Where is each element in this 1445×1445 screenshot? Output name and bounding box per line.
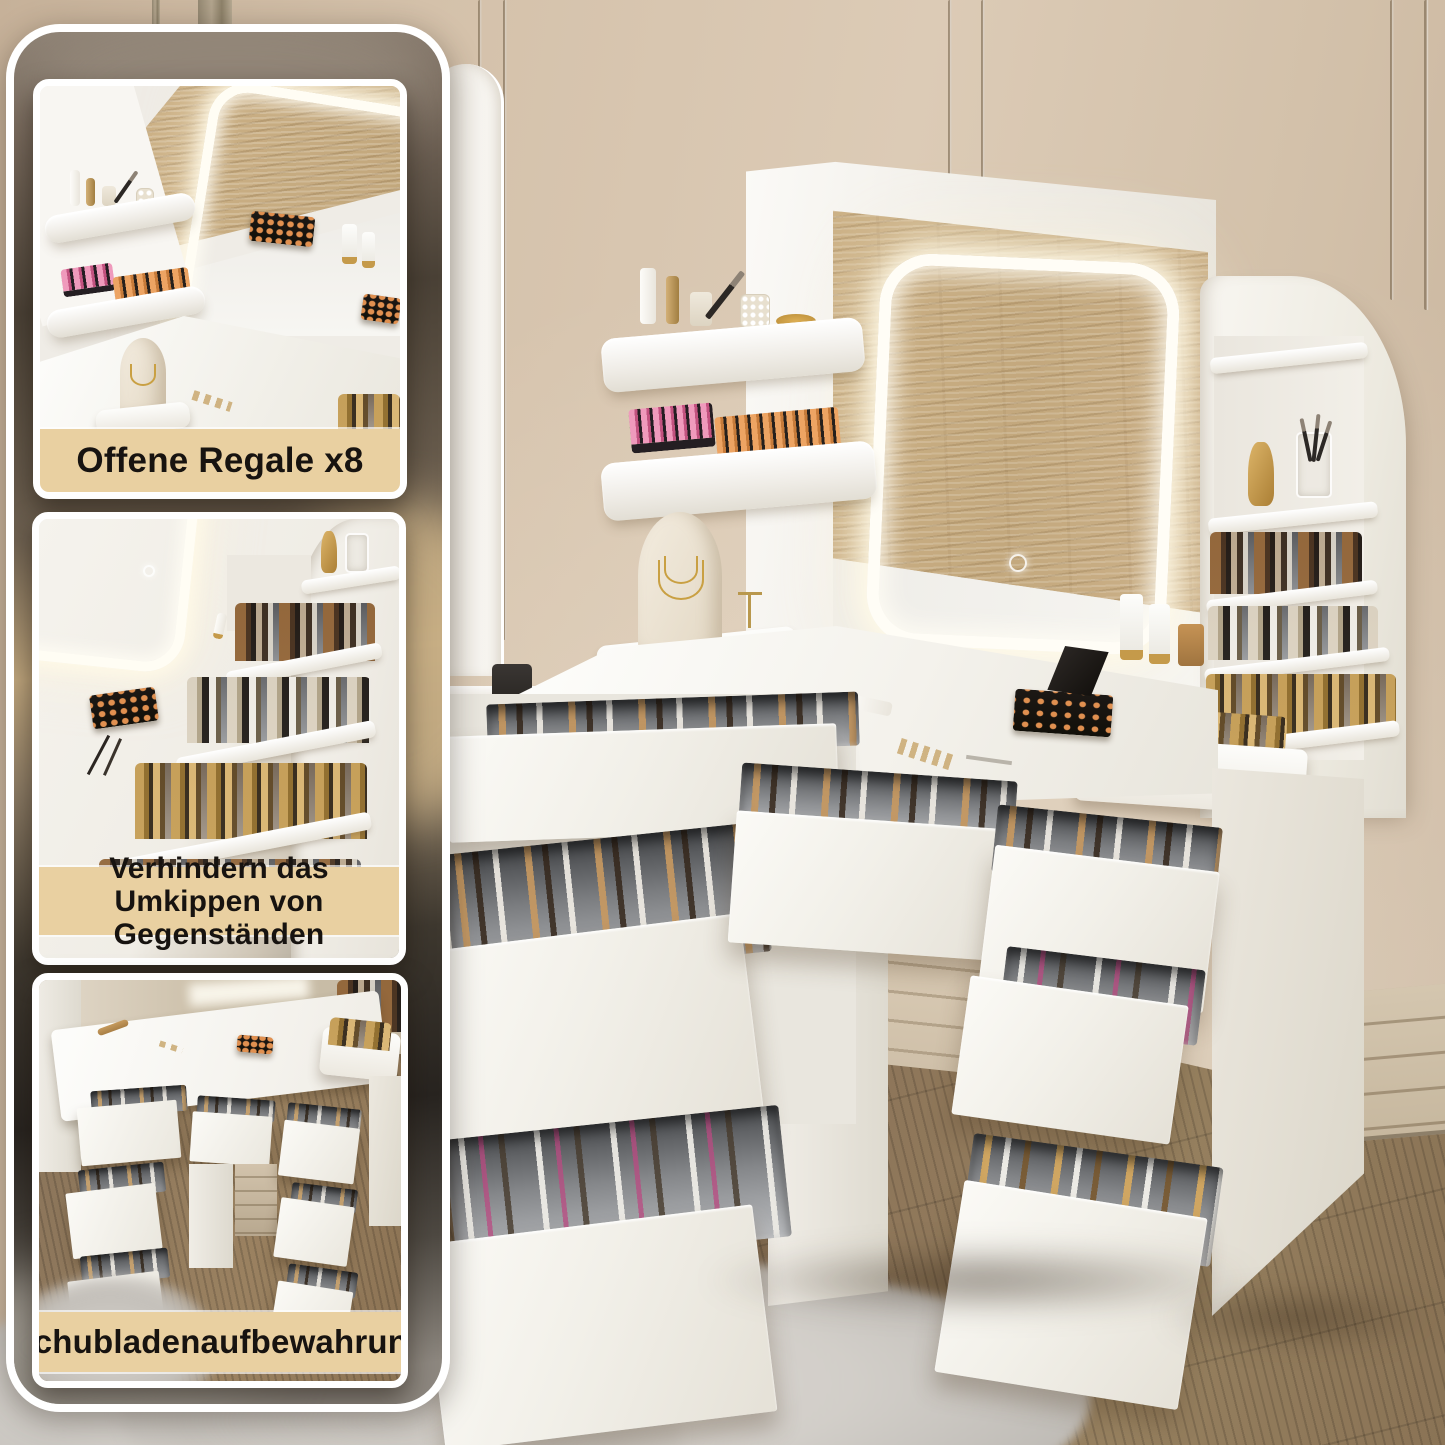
mini-knee-space [235, 1164, 277, 1236]
mini-side-panel [369, 1076, 401, 1226]
mini-brush-cup [345, 533, 369, 573]
feature-label-open-shelves: Offene Regale x8 [40, 429, 400, 492]
deer-figurine [1248, 442, 1274, 506]
wall-molding-line [1390, 0, 1394, 300]
feature-label-drawer-storage: Schubladenaufbewahrung [39, 1312, 401, 1372]
mini-deer-figurine [321, 531, 337, 573]
earring-stand-bar [738, 592, 762, 595]
brush-cup [1296, 432, 1332, 498]
feature-label-text: Verhindern das Umkippen von Gegenständen [47, 852, 391, 951]
feature-label-text: Schubladenaufbewahrung [32, 1323, 408, 1361]
mini-drawer-front [273, 1197, 355, 1267]
spray-bottle [1120, 594, 1143, 660]
mini-palette-right [360, 293, 401, 324]
product-collage: Offene Regale x8 [0, 0, 1445, 1445]
mini-drawer-front [278, 1120, 360, 1185]
makeup-palette [1013, 689, 1114, 738]
feature-card-anti-tip: Verhindern das Umkippen von Gegenständen [32, 512, 406, 965]
lipstick-set-pink [628, 402, 716, 453]
mini-gold-tube [86, 178, 95, 206]
mini-drawer-front-center [189, 1111, 272, 1166]
feature-card-drawer-storage: Schubladenaufbewahrung [32, 973, 408, 1388]
mini-palette [89, 687, 159, 730]
mini-spray [362, 232, 375, 268]
gold-tube [666, 276, 679, 324]
mini-necklace [130, 364, 156, 386]
mini-palette [236, 1034, 273, 1054]
mini-touch-button [143, 565, 155, 577]
pearl-jar [740, 294, 770, 328]
mini-tray-bottles [338, 394, 400, 430]
mini-perfume [102, 186, 116, 206]
drawer-front-center [728, 810, 1015, 961]
dropper-bottle [640, 268, 656, 324]
mini-led-corner [32, 512, 215, 675]
mini-lipstick [212, 612, 227, 640]
mini-center-column [189, 1164, 233, 1268]
amber-jar [1178, 624, 1204, 666]
mini-bottle [70, 170, 80, 206]
mini-drawer-front [77, 1100, 182, 1166]
floor-contact-shadow [1160, 1290, 1440, 1346]
touch-control-button [1009, 554, 1027, 572]
feature-panel: Offene Regale x8 [6, 24, 450, 1412]
mini-drawer-front [65, 1183, 162, 1259]
wall-molding-line [1424, 0, 1429, 310]
feature-card-open-shelves: Offene Regale x8 [33, 79, 407, 499]
mini-spray [342, 224, 357, 264]
spray-bottle [1149, 604, 1170, 664]
earring-stand [748, 594, 751, 628]
feature-label-text: Offene Regale x8 [76, 441, 363, 481]
drawer-front-left-bottom [421, 1204, 778, 1445]
gold-necklace-short [664, 556, 698, 584]
feature-label-anti-tip: Verhindern das Umkippen von Gegenständen [39, 867, 399, 935]
